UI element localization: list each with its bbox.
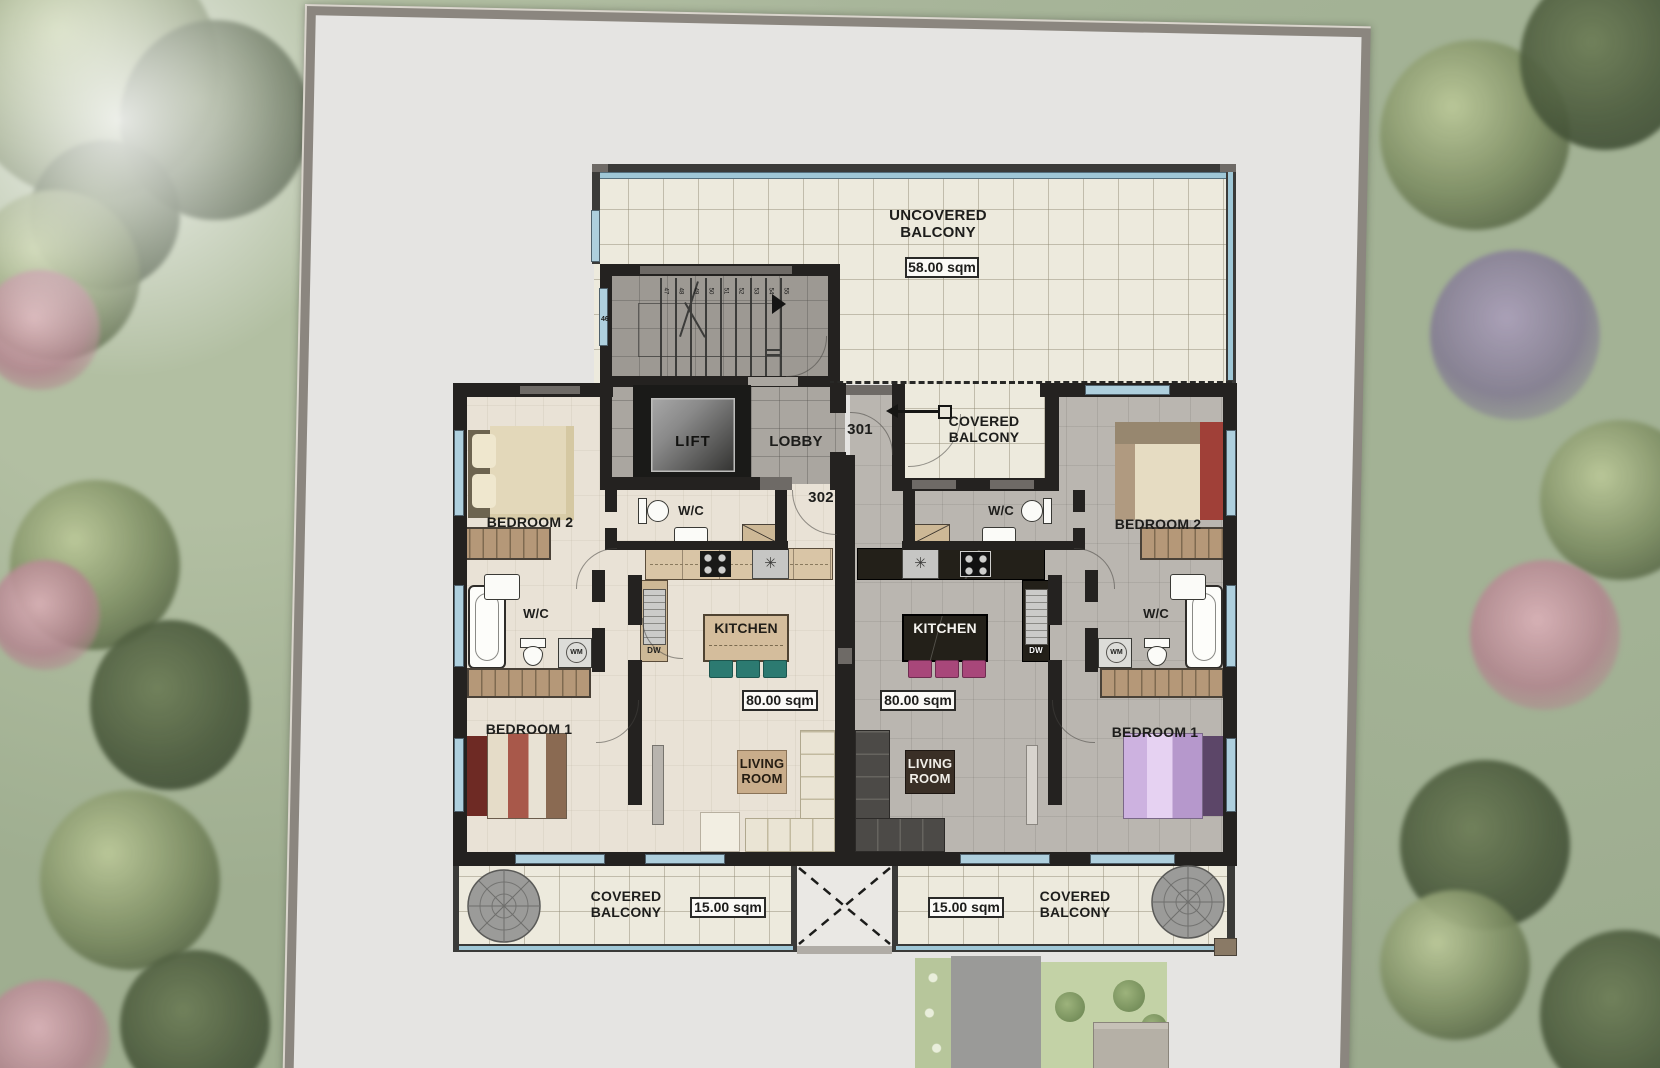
wardrobe bbox=[455, 527, 551, 560]
dw-label: DW bbox=[1022, 646, 1050, 655]
bed bbox=[467, 736, 487, 816]
wall bbox=[830, 383, 846, 413]
garden bbox=[1041, 962, 1167, 1068]
wall bbox=[1048, 575, 1062, 625]
stair-tick bbox=[766, 349, 782, 351]
wall bbox=[760, 477, 792, 490]
entrance-path bbox=[951, 956, 1041, 1068]
window bbox=[1226, 585, 1236, 667]
kitchen-sink: ✳ bbox=[902, 549, 939, 579]
bed bbox=[1115, 444, 1200, 520]
bed bbox=[1200, 422, 1223, 520]
room-label-wc: W/C bbox=[517, 607, 555, 622]
flower-bush bbox=[1470, 560, 1620, 710]
kitchen-counter bbox=[857, 548, 1045, 580]
sofa bbox=[800, 730, 835, 822]
tv-unit bbox=[1026, 745, 1038, 825]
washing-machine: WM bbox=[558, 638, 592, 668]
wall-cap bbox=[1220, 164, 1236, 172]
stair-wall-right bbox=[828, 264, 840, 386]
lift-label: LIFT bbox=[649, 433, 737, 450]
stair-tick bbox=[766, 354, 782, 356]
room-label-living: LIVING ROOM bbox=[737, 750, 787, 794]
bar-chair bbox=[935, 660, 959, 678]
wall bbox=[1045, 384, 1059, 491]
bar-chair bbox=[736, 660, 760, 678]
apartment-area: 80.00 sqm bbox=[880, 690, 956, 711]
wall bbox=[892, 866, 898, 946]
stair-numbers-top: 474849505152535455 bbox=[658, 279, 794, 291]
window bbox=[1085, 385, 1170, 395]
sofa bbox=[745, 818, 835, 852]
wall bbox=[612, 541, 788, 550]
bed bbox=[1123, 733, 1203, 819]
sink bbox=[484, 574, 520, 600]
wm-label: WM bbox=[566, 642, 587, 663]
bed bbox=[487, 733, 567, 819]
pillow bbox=[472, 434, 496, 468]
bed bbox=[490, 426, 574, 520]
flower-border bbox=[915, 958, 951, 1068]
wall-cap bbox=[592, 164, 608, 172]
room-label-bedroom1: BEDROOM 1 bbox=[1095, 724, 1215, 740]
patio-circle bbox=[1150, 864, 1226, 940]
tree bbox=[1540, 930, 1660, 1068]
glass-door bbox=[645, 854, 725, 864]
toilet bbox=[638, 498, 647, 524]
room-label-wc: W/C bbox=[982, 504, 1020, 519]
bar-chair bbox=[908, 660, 932, 678]
pillow bbox=[472, 474, 496, 508]
wardrobe bbox=[1100, 668, 1224, 698]
wall bbox=[600, 376, 612, 490]
glass-rail bbox=[457, 946, 793, 950]
wm-label: WM bbox=[1106, 642, 1127, 663]
counter-dash bbox=[650, 564, 828, 565]
site-plan: UNCOVERED BALCONY 58.00 sqm 474849505152… bbox=[0, 0, 1660, 1068]
toilet bbox=[1043, 498, 1052, 524]
window bbox=[1226, 738, 1236, 812]
toilet bbox=[647, 500, 669, 522]
wall bbox=[592, 628, 605, 672]
tv-unit bbox=[652, 745, 664, 825]
apartment-area: 80.00 sqm bbox=[742, 690, 818, 711]
window bbox=[454, 738, 464, 812]
kitchen-island: KITCHEN bbox=[902, 614, 988, 662]
kitchen-island: KITCHEN bbox=[703, 614, 789, 662]
balcony-area: 15.00 sqm bbox=[690, 897, 766, 918]
lobby-label: LOBBY bbox=[762, 433, 830, 450]
void-x bbox=[797, 866, 892, 946]
tree bbox=[40, 790, 220, 970]
wall bbox=[990, 480, 1034, 489]
door-opening bbox=[748, 377, 798, 386]
wall bbox=[830, 452, 846, 490]
room-label-bedroom2: BEDROOM 2 bbox=[470, 514, 590, 530]
stair-landing-outline bbox=[638, 303, 782, 357]
bar-chair bbox=[709, 660, 733, 678]
stair-wall-inner bbox=[640, 266, 792, 274]
sofa bbox=[855, 730, 890, 822]
balcony-rail bbox=[453, 866, 459, 952]
room-label-bedroom2: BEDROOM 2 bbox=[1098, 516, 1218, 532]
apartment-number: 302 bbox=[804, 489, 838, 506]
bench bbox=[1093, 1022, 1169, 1068]
bar-chair bbox=[962, 660, 986, 678]
window bbox=[1226, 430, 1236, 516]
window bbox=[454, 585, 464, 667]
kitchen-sink: ✳ bbox=[752, 549, 789, 579]
entry-arrow bbox=[897, 410, 941, 413]
room-label-living: LIVING ROOM bbox=[905, 750, 955, 794]
entry-arrow-head bbox=[886, 404, 898, 418]
kitchen-counter bbox=[645, 548, 833, 580]
washing-machine: WM bbox=[1098, 638, 1132, 668]
glass-door bbox=[515, 854, 605, 864]
wall bbox=[912, 480, 956, 489]
room-label-wc: W/C bbox=[672, 504, 710, 519]
wall bbox=[775, 490, 787, 550]
wall bbox=[605, 490, 617, 512]
bed bbox=[1203, 736, 1223, 816]
glass-rail bbox=[1228, 172, 1233, 380]
room-label-bedroom1: BEDROOM 1 bbox=[469, 721, 589, 737]
balcony-area: 15.00 sqm bbox=[928, 897, 1004, 918]
wall bbox=[892, 384, 905, 491]
wall bbox=[628, 575, 642, 625]
void-square bbox=[797, 866, 892, 946]
coffee-table bbox=[700, 812, 740, 852]
tree bbox=[1380, 890, 1530, 1040]
glass-door bbox=[1090, 854, 1175, 864]
glass-rail bbox=[896, 946, 1226, 950]
tree bbox=[90, 620, 250, 790]
flower-bush bbox=[0, 980, 110, 1068]
kitchen-label: KITCHEN bbox=[904, 620, 986, 636]
wall bbox=[838, 648, 852, 664]
wall bbox=[520, 386, 580, 394]
stove bbox=[700, 551, 731, 577]
wall bbox=[903, 490, 915, 550]
room-label-wc: W/C bbox=[1137, 607, 1175, 622]
window bbox=[454, 430, 464, 516]
window bbox=[591, 210, 600, 262]
void-rail bbox=[797, 946, 892, 954]
wall bbox=[628, 660, 642, 805]
wall bbox=[902, 541, 1078, 550]
island-dash bbox=[709, 645, 783, 646]
apartment-number: 301 bbox=[843, 421, 877, 438]
wall bbox=[1048, 660, 1062, 805]
patio-circle bbox=[466, 868, 542, 944]
glass-door bbox=[960, 854, 1050, 864]
wardrobe bbox=[467, 668, 591, 698]
plant bbox=[1055, 992, 1085, 1022]
sofa bbox=[855, 818, 945, 852]
plant bbox=[1113, 980, 1145, 1012]
wall bbox=[1073, 490, 1085, 512]
wall bbox=[1085, 628, 1098, 672]
glass-rail bbox=[600, 172, 1228, 179]
flower-bush bbox=[0, 560, 100, 670]
stair-turn-number: 46 bbox=[601, 316, 609, 323]
balcony-label: COVERED BALCONY bbox=[1034, 888, 1116, 920]
covered-balcony-top-label: COVERED BALCONY bbox=[943, 413, 1025, 445]
dishwasher bbox=[1025, 589, 1048, 645]
toilet bbox=[1021, 500, 1043, 522]
kitchen-label: KITCHEN bbox=[705, 620, 787, 636]
corner-post bbox=[1214, 938, 1237, 956]
uncovered-balcony-area: 58.00 sqm bbox=[905, 257, 979, 278]
stove bbox=[960, 551, 991, 577]
balcony-rail-top bbox=[592, 164, 1236, 172]
flower-bush bbox=[1430, 250, 1600, 420]
balcony-label: COVERED BALCONY bbox=[585, 888, 667, 920]
tree bbox=[1540, 420, 1660, 580]
uncovered-balcony-label: UNCOVERED BALCONY bbox=[878, 207, 998, 242]
sink bbox=[1170, 574, 1206, 600]
wall bbox=[791, 866, 797, 946]
bar-chair bbox=[763, 660, 787, 678]
